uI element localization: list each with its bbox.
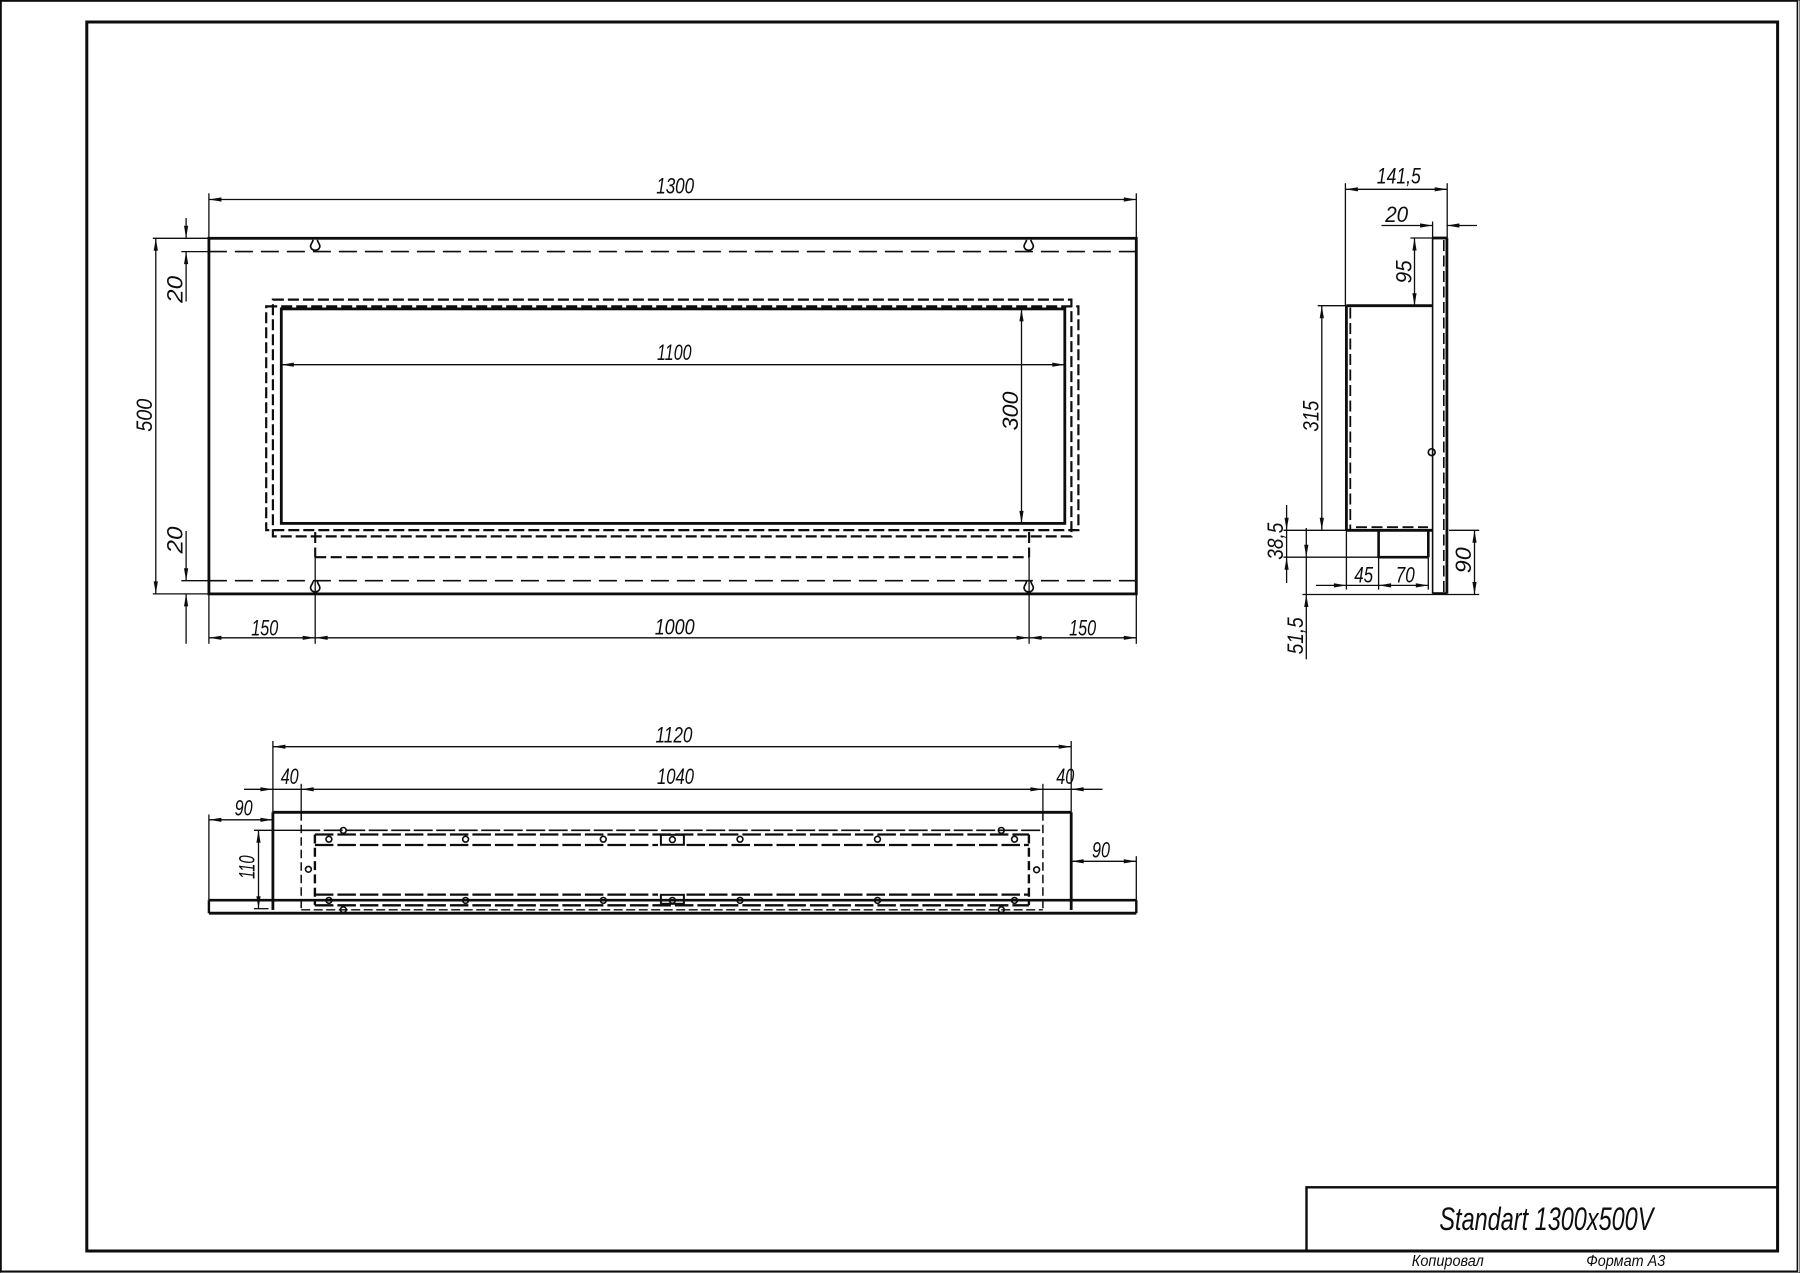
svg-text:1040: 1040 — [657, 764, 695, 789]
svg-text:110: 110 — [235, 855, 260, 879]
svg-text:20: 20 — [1384, 202, 1409, 227]
svg-text:150: 150 — [1069, 615, 1097, 640]
svg-text:Копировал: Копировал — [1412, 1253, 1484, 1270]
svg-text:51,5: 51,5 — [1283, 617, 1308, 655]
svg-text:70: 70 — [1396, 563, 1416, 588]
svg-text:20: 20 — [163, 275, 188, 304]
svg-text:1120: 1120 — [656, 722, 694, 747]
svg-text:1000: 1000 — [655, 615, 696, 640]
svg-text:45: 45 — [1354, 563, 1374, 588]
svg-text:90: 90 — [1092, 837, 1111, 862]
svg-text:300: 300 — [998, 391, 1023, 430]
svg-text:315: 315 — [1298, 400, 1323, 432]
svg-text:150: 150 — [251, 615, 279, 640]
svg-text:20: 20 — [163, 526, 188, 555]
svg-text:95: 95 — [1391, 260, 1416, 284]
svg-text:1300: 1300 — [656, 173, 695, 198]
svg-text:1100: 1100 — [657, 340, 692, 365]
svg-text:40: 40 — [281, 764, 300, 789]
svg-text:500: 500 — [132, 398, 157, 432]
svg-text:90: 90 — [1451, 547, 1476, 574]
svg-text:Формат А3: Формат А3 — [1586, 1253, 1665, 1270]
svg-text:38,5: 38,5 — [1263, 522, 1288, 560]
svg-text:40: 40 — [1056, 764, 1075, 789]
svg-text:141,5: 141,5 — [1377, 163, 1422, 188]
svg-text:Standart 1300x500V: Standart 1300x500V — [1439, 1201, 1655, 1237]
svg-text:90: 90 — [235, 796, 254, 821]
